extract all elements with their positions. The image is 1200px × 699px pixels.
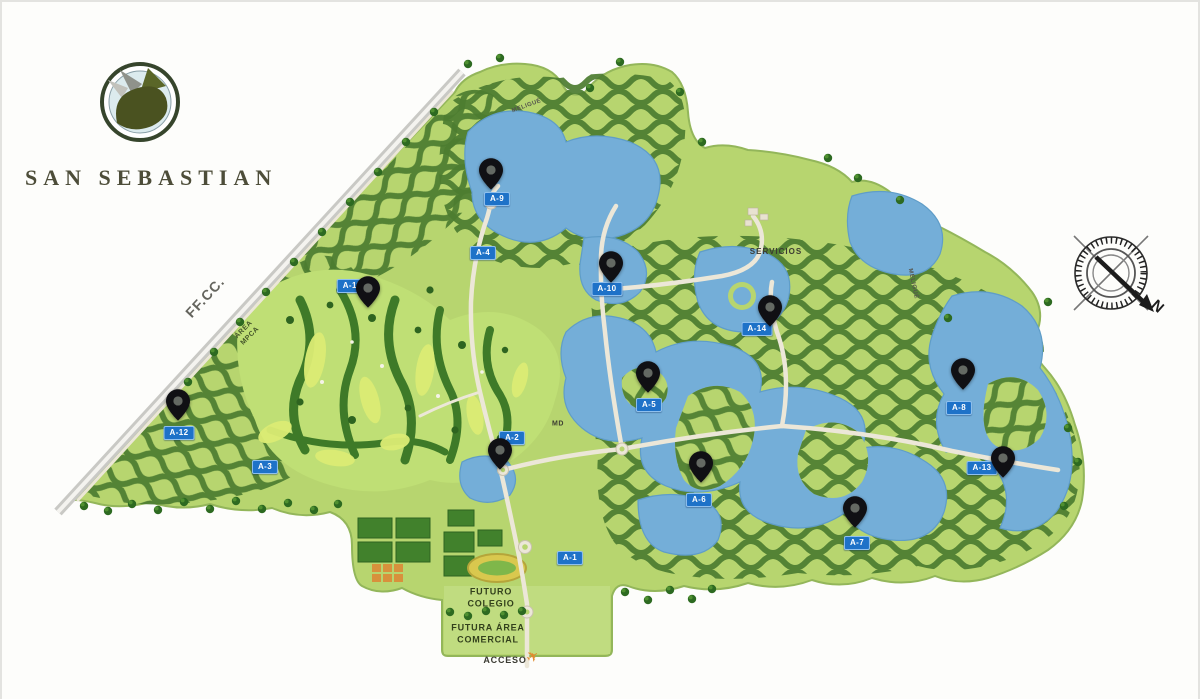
map-pin-a-8[interactable] — [951, 358, 975, 390]
map-pin-a-13[interactable] — [991, 446, 1015, 478]
area-label-a-6[interactable]: A-6 — [686, 493, 712, 507]
area-label-a-5[interactable]: A-5 — [636, 398, 662, 412]
area-label-a-7[interactable]: A-7 — [844, 536, 870, 550]
compass-rose: N — [1066, 224, 1176, 324]
san-sebastian-logo — [25, 58, 261, 146]
area-label-a-9[interactable]: A-9 — [484, 192, 510, 206]
area-label-a-12[interactable]: A-12 — [164, 426, 195, 440]
map-pin-a-14[interactable] — [758, 295, 782, 327]
area-label-a-3[interactable]: A-3 — [252, 460, 278, 474]
area-label-a-8[interactable]: A-8 — [946, 401, 972, 415]
brand-block: SAN SEBASTIAN — [25, 58, 261, 191]
area-label-a-4[interactable]: A-4 — [470, 246, 496, 260]
map-canvas: SAN SEBASTIAN N FF.CC.ÁREA MPCASERVICIOS… — [0, 0, 1200, 699]
map-pin-a-10[interactable] — [599, 251, 623, 283]
area-label-a-1[interactable]: A-1 — [557, 551, 583, 565]
map-pin-a-2[interactable] — [488, 438, 512, 470]
map-pin-a-6[interactable] — [689, 451, 713, 483]
map-pin-a-5[interactable] — [636, 361, 660, 393]
map-pin-a-11[interactable] — [356, 276, 380, 308]
map-pin-a-7[interactable] — [843, 496, 867, 528]
map-pin-a-12[interactable] — [166, 389, 190, 421]
area-label-a-10[interactable]: A-10 — [592, 282, 623, 296]
brand-title: SAN SEBASTIAN — [25, 165, 261, 191]
map-pin-a-9[interactable] — [479, 158, 503, 190]
